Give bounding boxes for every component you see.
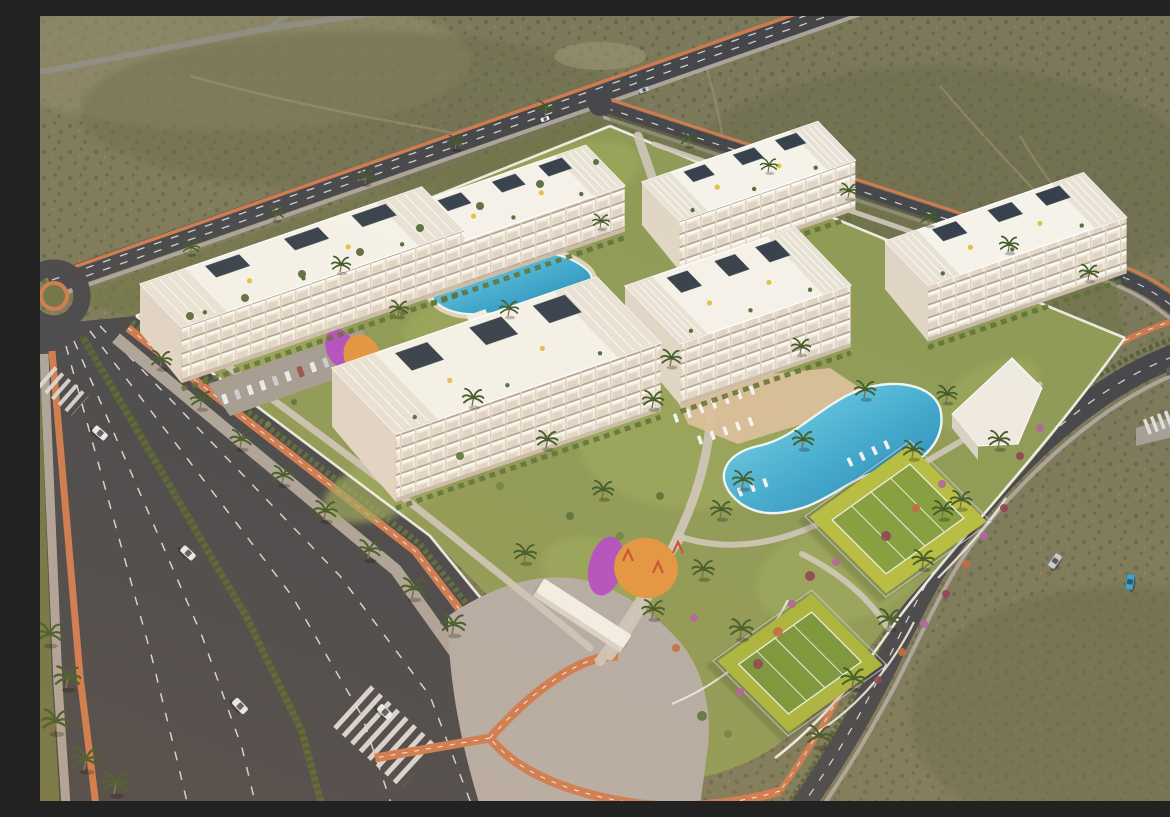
layer-light	[40, 16, 1170, 801]
scene-svg	[40, 16, 1170, 801]
golden-hour-light	[40, 16, 1170, 801]
aerial-render: Aerial oblique 3D architectural renderin…	[40, 16, 1170, 801]
